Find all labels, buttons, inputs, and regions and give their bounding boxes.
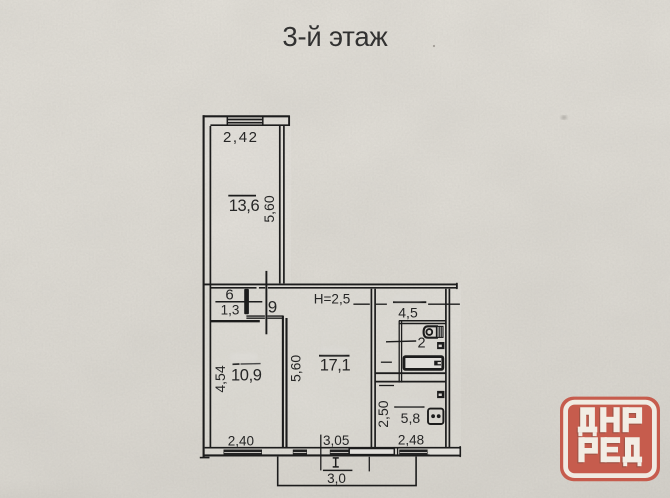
- svg-text:2,40: 2,40: [228, 434, 254, 449]
- svg-text:4,5: 4,5: [398, 305, 418, 321]
- svg-text:2,50: 2,50: [375, 400, 391, 427]
- svg-text:13,6: 13,6: [229, 197, 260, 215]
- svg-text:3,0: 3,0: [327, 471, 346, 486]
- svg-text:17,1: 17,1: [320, 357, 351, 375]
- svg-text:3,05: 3,05: [323, 433, 349, 448]
- svg-text:5,60: 5,60: [287, 355, 303, 382]
- svg-text:2,48: 2,48: [398, 433, 424, 448]
- svg-text:5,60: 5,60: [261, 195, 277, 222]
- svg-text:9: 9: [268, 298, 277, 317]
- svg-text:1,3: 1,3: [221, 303, 240, 318]
- svg-text:H=2,5: H=2,5: [314, 292, 350, 307]
- svg-text:2,42: 2,42: [223, 129, 259, 146]
- svg-text:4,54: 4,54: [212, 365, 228, 392]
- svg-text:6: 6: [225, 287, 233, 304]
- svg-text:2: 2: [417, 336, 425, 352]
- svg-text:10,9: 10,9: [231, 367, 262, 385]
- svg-text:5,8: 5,8: [401, 410, 421, 426]
